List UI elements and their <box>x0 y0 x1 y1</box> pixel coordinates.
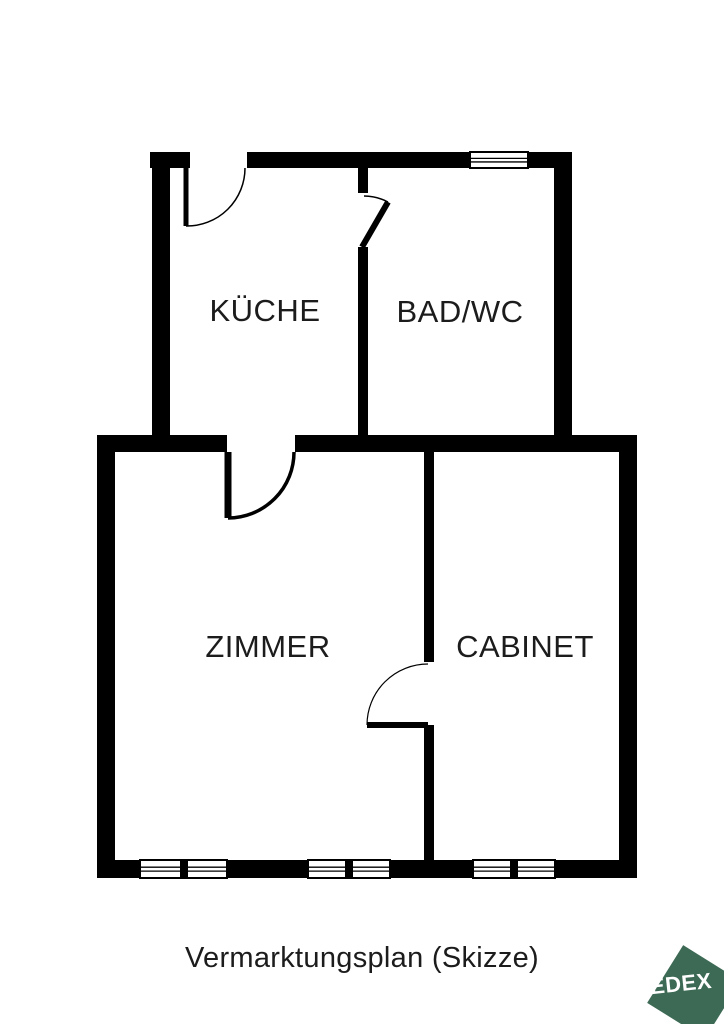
entry-door-swing-arc <box>186 168 245 226</box>
window <box>470 152 528 168</box>
wall-segment <box>390 860 473 878</box>
wall-segment <box>619 435 637 878</box>
wall-segment <box>97 435 227 452</box>
wall-segment <box>295 435 637 452</box>
bad-wc-door-leaf <box>362 202 388 247</box>
floorplan-svg: KÜCHEBAD/WCZIMMERCABINET <box>0 0 724 1024</box>
wall-segment <box>97 435 115 878</box>
cabinet-door-swing-arc <box>367 664 428 725</box>
bad-wc-door-swing-arc <box>364 196 388 202</box>
room-label-bad-wc: BAD/WC <box>397 294 524 329</box>
floorplan-page: KÜCHEBAD/WCZIMMERCABINET Vermarktungspla… <box>0 0 724 1024</box>
window-mullion <box>510 860 518 878</box>
wall-segment <box>227 860 308 878</box>
room-label-kueche: KÜCHE <box>209 293 320 328</box>
wall-segment <box>424 725 434 860</box>
zimmer-door-swing-arc <box>228 452 294 518</box>
wall-segment <box>247 152 470 168</box>
room-label-zimmer: ZIMMER <box>205 629 330 664</box>
window-mullion <box>345 860 353 878</box>
wall-segment <box>152 152 170 452</box>
plan-caption: Vermarktungsplan (Skizze) <box>0 942 724 975</box>
wall-segment <box>554 152 572 452</box>
wall-segment <box>358 247 368 445</box>
wall-segment <box>97 860 140 878</box>
room-label-cabinet: CABINET <box>456 629 594 664</box>
wall-segment <box>358 166 368 193</box>
wall-segment <box>424 452 434 662</box>
wall-segment <box>555 860 637 878</box>
window-mullion <box>180 860 188 878</box>
